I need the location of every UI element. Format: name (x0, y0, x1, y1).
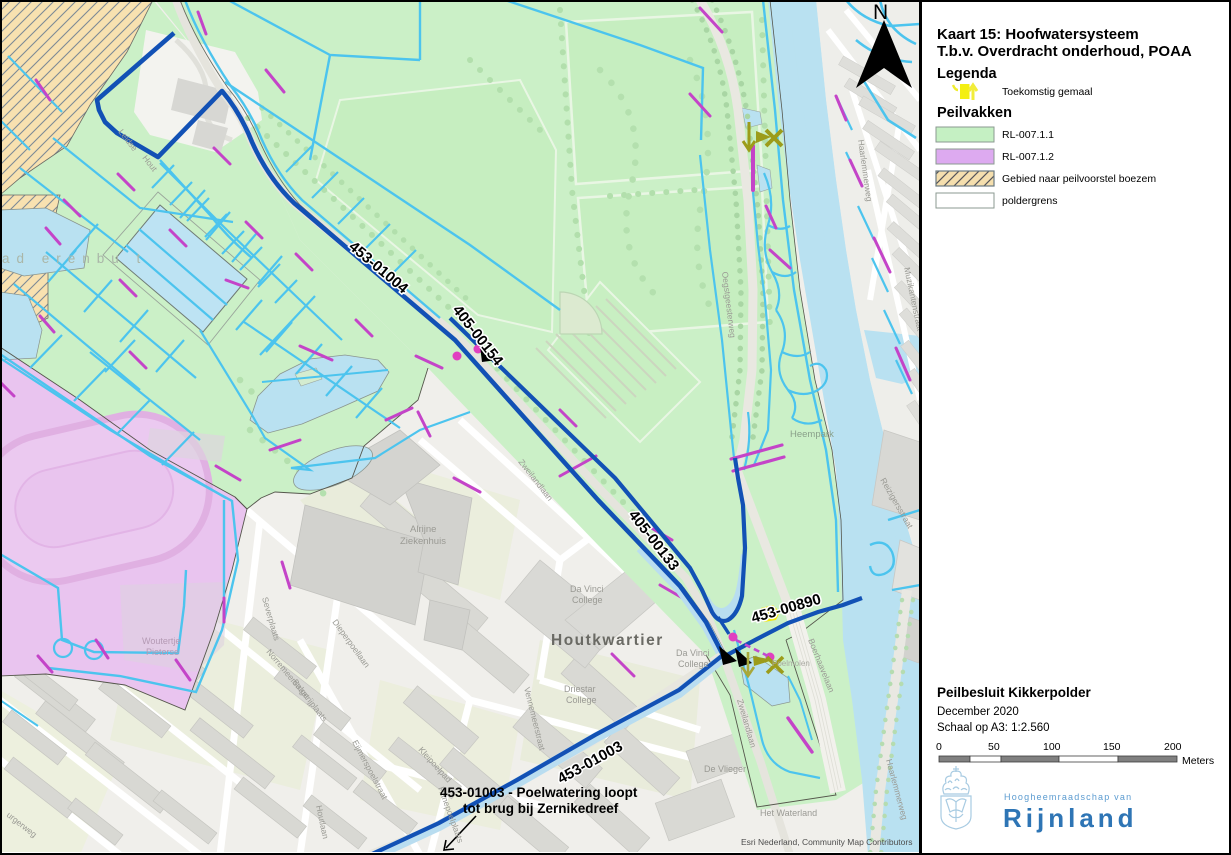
svg-text:Da Vinci: Da Vinci (676, 648, 709, 658)
svg-text:De Vlieger: De Vlieger (704, 764, 746, 774)
svg-text:T.b.v. Overdracht onderhoud, P: T.b.v. Overdracht onderhoud, POAA (937, 43, 1192, 60)
svg-text:December 2020: December 2020 (937, 706, 1019, 718)
svg-text:Poelmolen: Poelmolen (772, 659, 810, 668)
svg-text:Ziekenhuis: Ziekenhuis (400, 536, 446, 547)
svg-text:Peilbesluit Kikkerpolder: Peilbesluit Kikkerpolder (937, 685, 1092, 700)
svg-text:ad erenbu t: ad erenbu t (2, 251, 147, 266)
svg-text:Alrijne: Alrijne (410, 524, 436, 535)
svg-text:Hoogheemraadschap van: Hoogheemraadschap van (1004, 792, 1132, 802)
svg-text:poldergrens: poldergrens (1002, 195, 1057, 207)
svg-text:College: College (678, 659, 709, 669)
svg-text:N: N (873, 1, 888, 24)
svg-text:Driestar: Driestar (564, 684, 596, 694)
svg-text:Esri Nederland, Community Map: Esri Nederland, Community Map Contributo… (741, 837, 912, 847)
svg-text:RL-007.1.2: RL-007.1.2 (1002, 151, 1054, 163)
svg-text:Heempark: Heempark (790, 429, 834, 440)
svg-text:100: 100 (1043, 741, 1061, 753)
svg-text:150: 150 (1103, 741, 1121, 753)
svg-text:Houtkwartier: Houtkwartier (551, 632, 664, 649)
svg-text:RL-007.1.1: RL-007.1.1 (1002, 129, 1054, 141)
svg-text:Legenda: Legenda (937, 66, 998, 82)
svg-text:Peilvakken: Peilvakken (937, 105, 1012, 121)
svg-text:Woutertje: Woutertje (142, 636, 180, 646)
svg-text:Het Waterland: Het Waterland (760, 808, 817, 818)
svg-text:College: College (572, 595, 603, 605)
svg-text:Schaal op A3: 1:2.560: Schaal op A3: 1:2.560 (937, 722, 1050, 734)
svg-text:Meters: Meters (1182, 755, 1214, 767)
svg-text:50: 50 (988, 741, 1000, 753)
svg-text:Kaart 15: Hoofwatersysteem: Kaart 15: Hoofwatersysteem (937, 26, 1139, 43)
svg-text:200: 200 (1164, 741, 1182, 753)
svg-text:Toekomstig gemaal: Toekomstig gemaal (1002, 86, 1092, 98)
svg-text:453-01003 - Poelwatering loopt: 453-01003 - Poelwatering loopt (440, 785, 638, 800)
svg-text:Da Vinci: Da Vinci (570, 584, 603, 594)
svg-text:College: College (566, 695, 597, 705)
svg-text:Pieterse: Pieterse (146, 647, 179, 657)
svg-text:Rijnland: Rijnland (1003, 803, 1138, 833)
svg-text:0: 0 (936, 741, 942, 753)
svg-text:tot brug bij Zernikedreef: tot brug bij Zernikedreef (463, 801, 619, 816)
svg-text:Gebied naar peilvoorstel boeze: Gebied naar peilvoorstel boezem (1002, 173, 1156, 185)
